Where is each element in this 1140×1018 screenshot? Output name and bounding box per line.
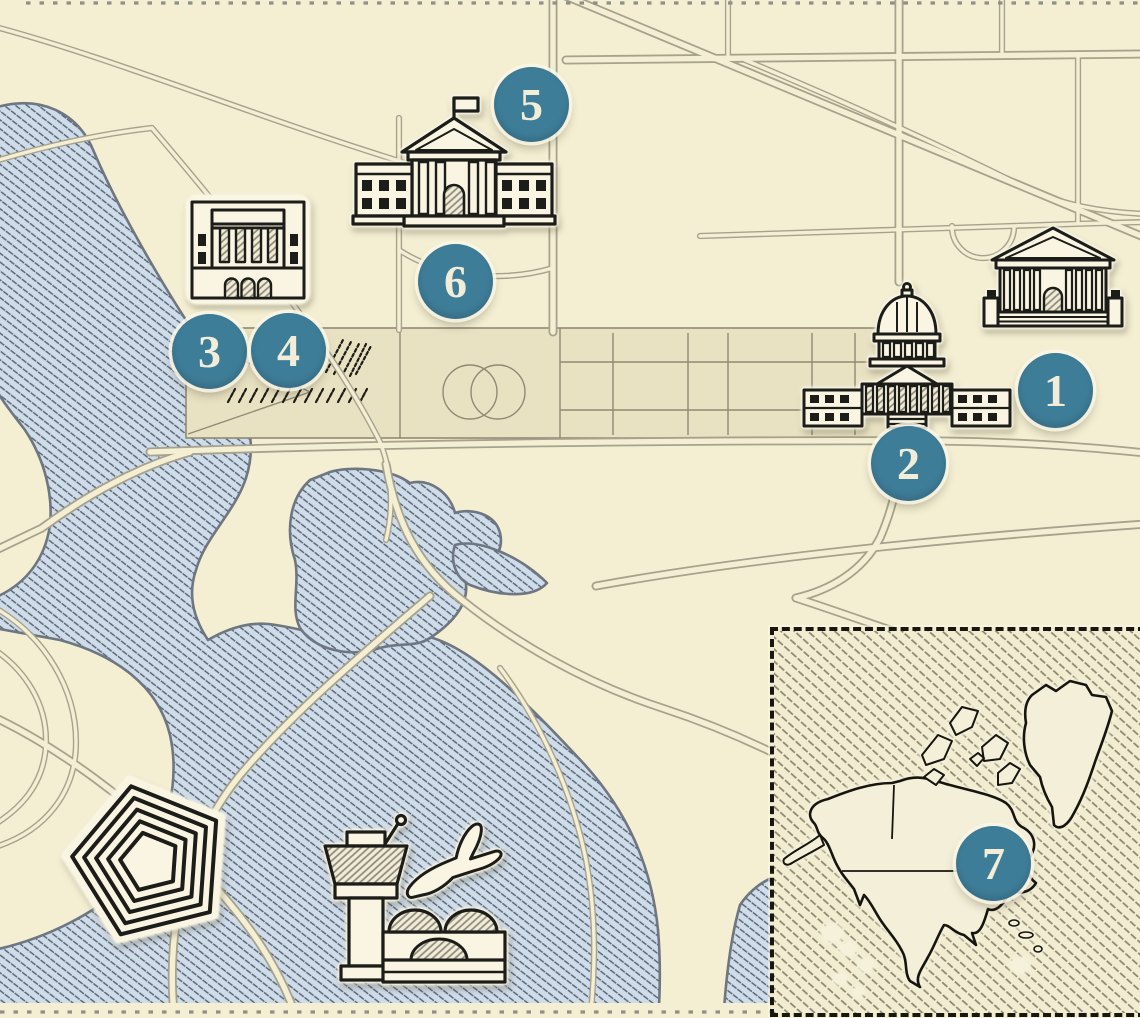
supreme-court-icon[interactable] — [980, 220, 1126, 336]
marker-2[interactable]: 2 — [871, 426, 946, 501]
terminal-icon — [383, 910, 505, 982]
north-america-map — [774, 631, 1140, 1013]
dc-landmarks-map: 1 2 3 4 5 6 7 — [0, 0, 1140, 1018]
marker-4[interactable]: 4 — [251, 313, 326, 388]
marker-7[interactable]: 7 — [956, 826, 1031, 901]
pentagon-icon[interactable] — [50, 762, 250, 962]
memorial-icon[interactable] — [186, 190, 310, 306]
marker-5[interactable]: 5 — [494, 67, 569, 142]
marker-1[interactable]: 1 — [1018, 353, 1093, 428]
airplane-icon — [399, 821, 505, 898]
north-america-inset[interactable] — [770, 627, 1140, 1017]
marker-3[interactable]: 3 — [172, 314, 247, 389]
marker-6[interactable]: 6 — [418, 244, 493, 319]
airport-icon[interactable] — [285, 812, 517, 994]
